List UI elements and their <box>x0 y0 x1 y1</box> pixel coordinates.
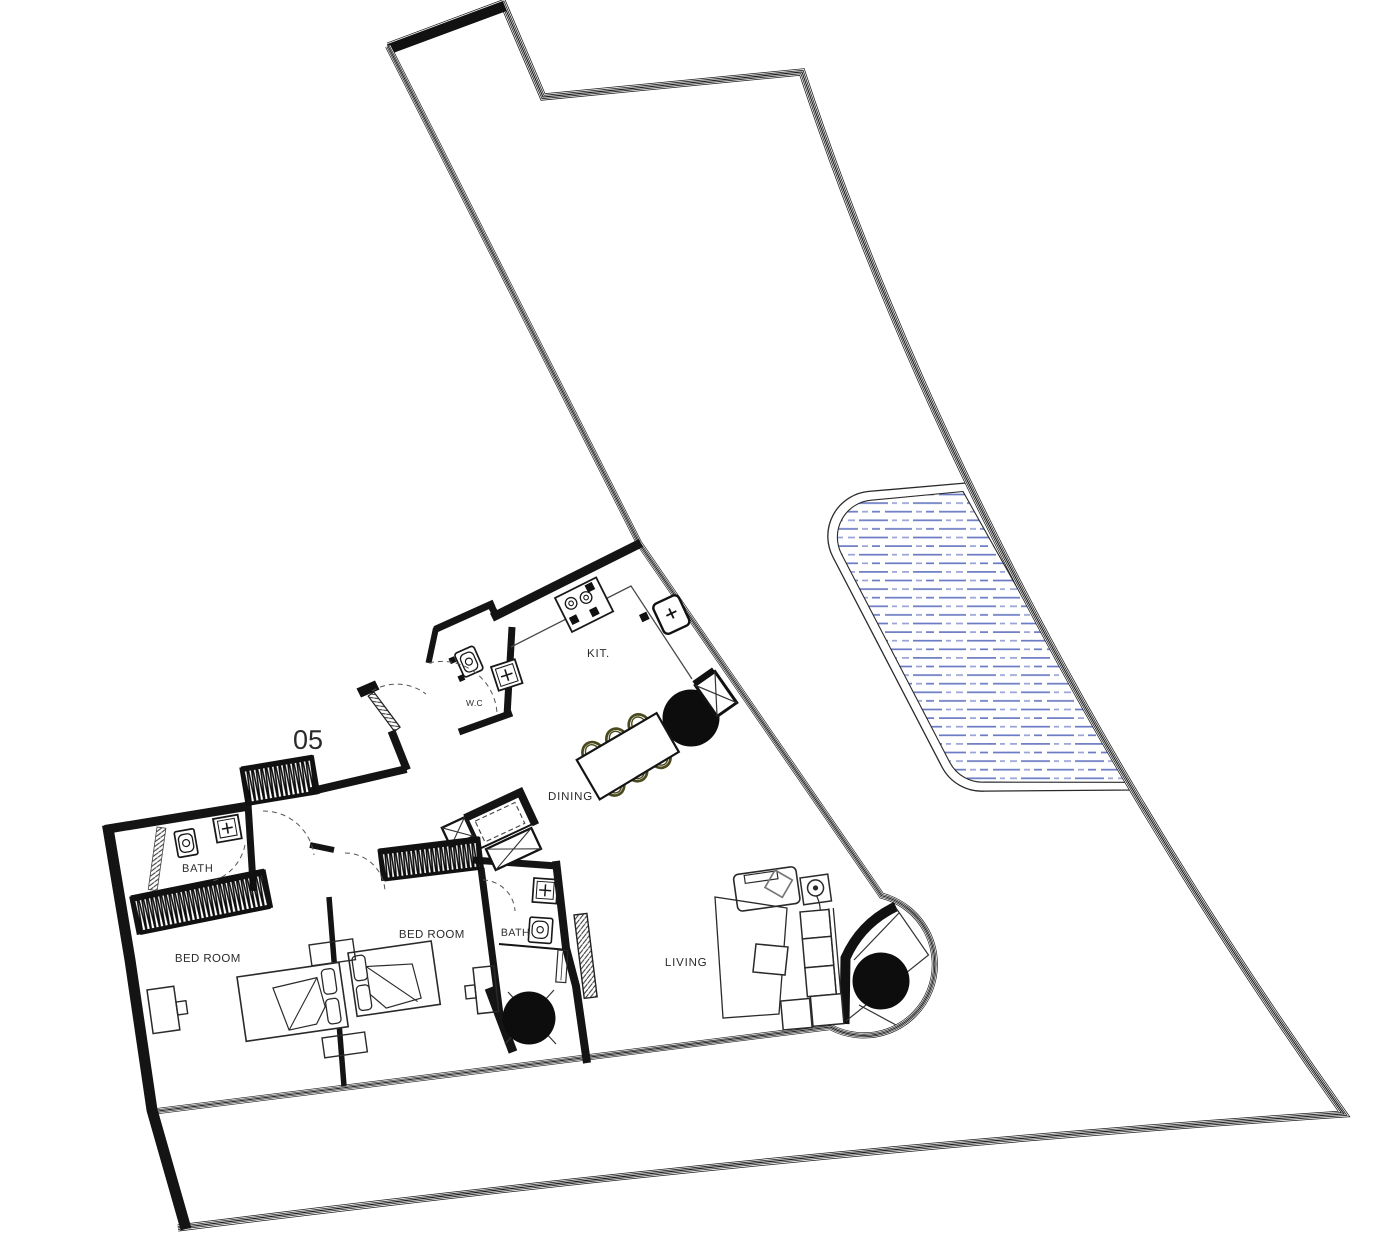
svg-text:BATH: BATH <box>501 927 530 939</box>
svg-text:BED ROOM: BED ROOM <box>399 929 465 941</box>
svg-text:LIVING: LIVING <box>665 957 708 969</box>
svg-text:DINING: DINING <box>548 791 593 803</box>
svg-text:BATH: BATH <box>182 863 214 875</box>
svg-text:BED ROOM: BED ROOM <box>175 953 241 965</box>
svg-text:W.C: W.C <box>466 698 483 708</box>
svg-text:05: 05 <box>293 725 323 755</box>
svg-text:KIT.: KIT. <box>587 648 610 660</box>
